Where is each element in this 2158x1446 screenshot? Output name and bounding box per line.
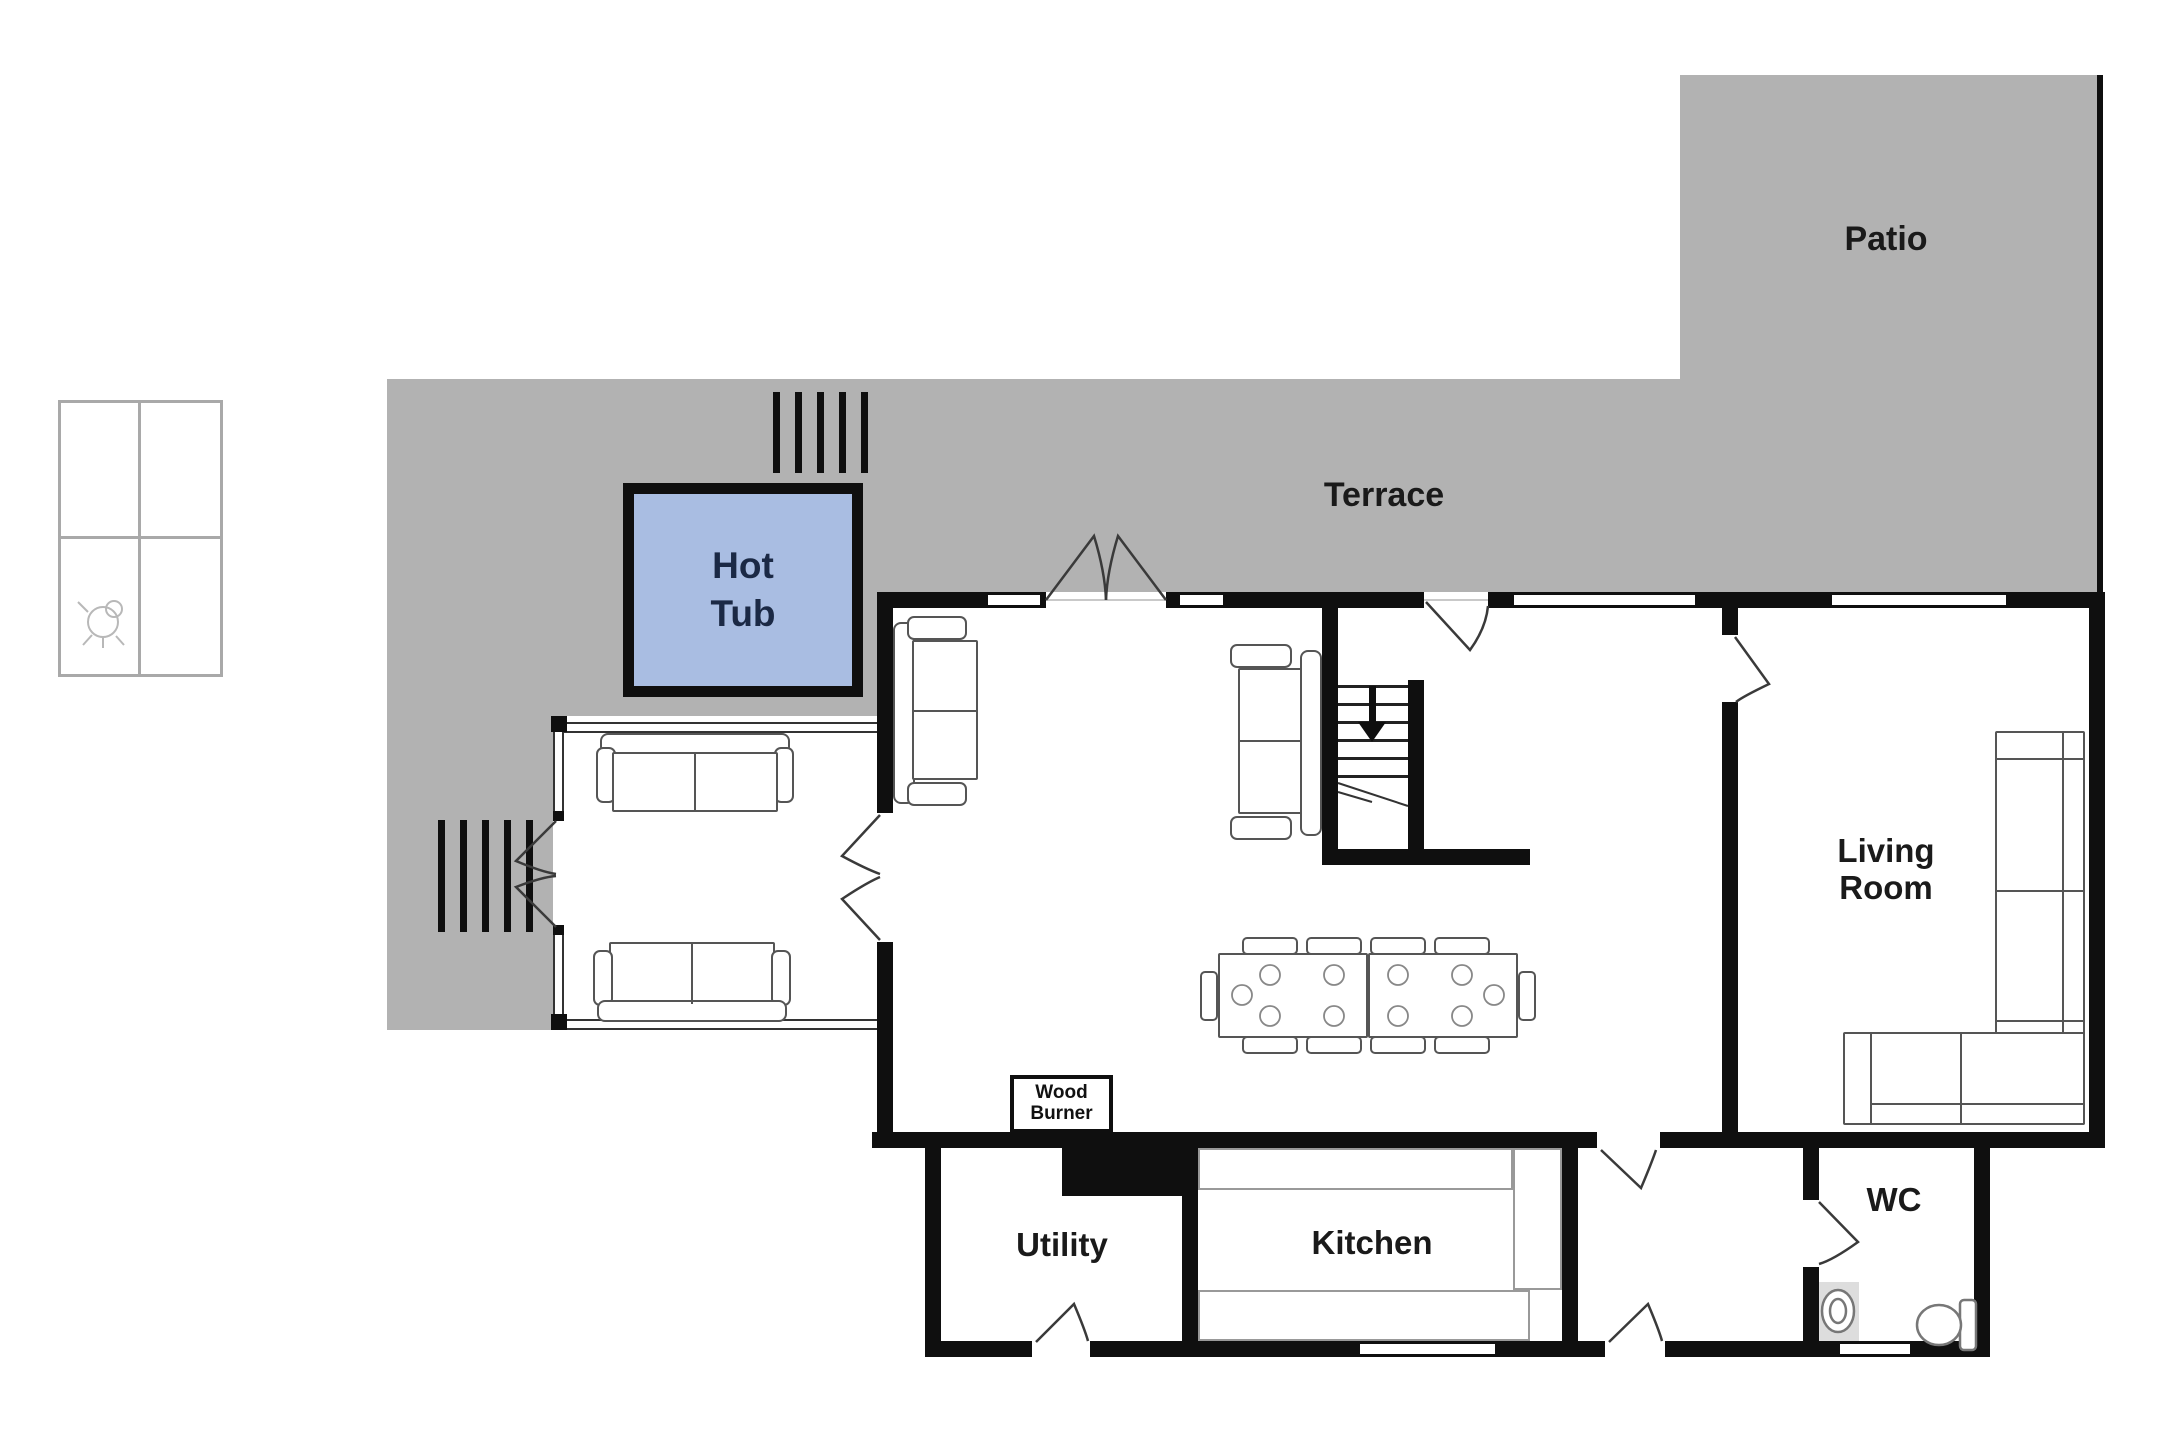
kitchen-label: Kitchen [1282,1224,1462,1262]
wall [1803,1267,1819,1341]
sofa-cushion-line [1960,1034,1962,1123]
wall [872,1132,1597,1148]
step-marker [526,820,533,932]
wall [1562,1148,1578,1341]
wall [1660,1132,2105,1148]
dining-chair [1200,971,1218,1021]
sofa-armrest [593,950,613,1006]
hot-tub: Hot Tub [623,483,863,697]
sofa-cushion-line [691,944,693,1004]
door-jamb [553,811,564,821]
kitchen-counter [1198,1148,1513,1190]
wall [1040,592,1046,608]
sofa-cushion-line [1870,1034,1872,1123]
sofa-cushion-line [1997,890,2083,892]
terrace-label: Terrace [1284,476,1484,515]
wall [1488,592,1514,608]
sofa-cushion-line [1240,740,1300,742]
stair-tread [1338,775,1408,778]
wall [1495,1341,1605,1357]
wood-burner: Wood Burner [1010,1075,1113,1133]
sofa-cushion-line [1997,1020,2083,1022]
sofa-cushion-line [1997,758,2083,760]
window [1832,592,2006,608]
wall [1090,1341,1360,1357]
patio-edge-line [2097,75,2103,598]
sunroom-window-wall [557,722,877,733]
sofa-armrest [907,782,967,806]
patio-label: Patio [1786,220,1986,259]
corner-post [551,716,567,732]
dining-chair [1242,1036,1298,1054]
wall [925,1148,941,1357]
step-marker [795,392,802,473]
step-marker [504,820,511,932]
window [988,592,1040,608]
step-marker [861,392,868,473]
hot-tub-label: Hot Tub [688,542,798,638]
chimney-breast [1062,1148,1182,1196]
sofa-armrest [771,950,791,1006]
corner-post [551,1014,567,1030]
wall [1695,592,1832,608]
sunroom-window-wall [553,722,564,813]
down-arrow-icon [1369,686,1376,724]
wc-sink-tile [1819,1282,1859,1341]
dining-table [1368,953,1518,1038]
kitchen-counter [1513,1148,1562,1290]
dining-chair [1434,1036,1490,1054]
sectional-sofa [1843,1032,2085,1125]
wc-label: WC [1844,1181,1944,1219]
dining-chair [1306,1036,1362,1054]
patio-area [1680,75,2100,608]
legend-window-mullion-horizontal [58,536,223,539]
living-room-label: Living Room [1816,833,1956,907]
wood-burner-label: Wood Burner [1022,1083,1102,1125]
sofa-armrest [1230,816,1292,840]
sunroom-window-wall [553,933,564,1019]
window [1840,1341,1910,1357]
terrace-deck-left [387,379,557,1030]
stairs-wall [1322,849,1530,865]
sofa-armrest [1230,644,1292,668]
kitchen-counter [1198,1290,1530,1341]
step-marker [817,392,824,473]
stairs-wall [1408,680,1424,865]
utility-label: Utility [972,1226,1152,1264]
sofa-armrest [907,616,967,640]
wall [1223,592,1424,608]
wall [877,942,893,1148]
wall [1722,608,1738,635]
wall [925,1341,1032,1357]
sofa-cushion-line [914,710,976,712]
terrace-area [877,379,1680,608]
wall [1803,1148,1819,1200]
wall [2089,592,2105,1148]
wall [1910,1341,1990,1357]
wall [1182,1148,1198,1341]
wall [877,592,893,813]
wall [1974,1148,1990,1341]
down-arrow-icon [1358,722,1386,742]
dining-table [1218,953,1368,1038]
window [1360,1341,1495,1357]
step-marker [460,820,467,932]
step-marker [773,392,780,473]
sofa-cushion-line [1872,1103,2083,1105]
dining-chair [1518,971,1536,1021]
sofa-back [1300,650,1322,836]
wall [1166,592,1180,608]
door-jamb [553,925,564,935]
wall [1665,1341,1840,1357]
window [1180,592,1223,608]
dining-chair [1370,1036,1426,1054]
wall [877,592,988,608]
sofa-cushion-line [694,754,696,810]
step-marker [482,820,489,932]
step-marker [438,820,445,932]
step-marker [839,392,846,473]
window [1514,592,1695,608]
floor-plan: Hot Tub [0,0,2158,1446]
stair-tread [1338,757,1408,760]
stairs-wall [1322,608,1338,865]
wall [1722,702,1738,1132]
